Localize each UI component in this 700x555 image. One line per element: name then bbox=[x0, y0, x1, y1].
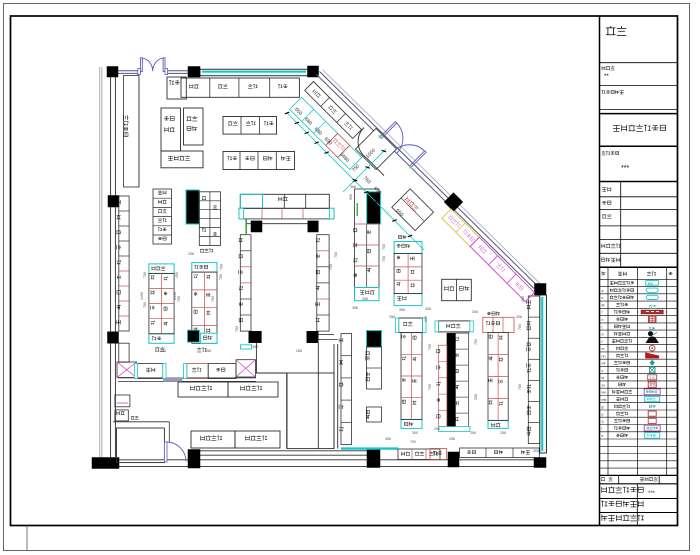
svg-text:1.5: 1.5 bbox=[649, 375, 655, 380]
svg-text:256: 256 bbox=[470, 431, 476, 435]
svg-text:700: 700 bbox=[410, 440, 416, 444]
svg-text:v: v bbox=[602, 369, 604, 373]
svg-text:**: ** bbox=[604, 74, 609, 80]
svg-text:700: 700 bbox=[428, 344, 432, 350]
svg-text:306: 306 bbox=[472, 310, 478, 314]
svg-text:***: *** bbox=[621, 165, 629, 172]
svg-text:306: 306 bbox=[516, 315, 522, 319]
svg-text:300: 300 bbox=[424, 316, 428, 322]
svg-text:wu: wu bbox=[602, 391, 607, 395]
svg-text:306: 306 bbox=[533, 449, 539, 453]
svg-text:680: 680 bbox=[313, 126, 323, 136]
svg-text:356: 356 bbox=[389, 315, 395, 319]
svg-text:e: e bbox=[602, 434, 604, 438]
svg-text:ts: ts bbox=[602, 376, 605, 380]
svg-text:700: 700 bbox=[329, 264, 333, 270]
svg-text:650: 650 bbox=[293, 107, 303, 117]
svg-text:n: n bbox=[602, 318, 604, 322]
svg-text:2450: 2450 bbox=[140, 292, 144, 300]
svg-text:700: 700 bbox=[143, 272, 147, 278]
svg-text:258: 258 bbox=[188, 252, 194, 256]
svg-text:356: 356 bbox=[352, 306, 358, 310]
svg-text:690: 690 bbox=[323, 136, 333, 146]
svg-text:a: a bbox=[602, 289, 604, 293]
svg-text:700: 700 bbox=[382, 244, 386, 250]
svg-text:700: 700 bbox=[177, 296, 181, 302]
svg-text:d: d bbox=[602, 333, 604, 337]
svg-text:m: m bbox=[602, 347, 605, 351]
svg-text:p: p bbox=[602, 412, 604, 416]
svg-text:s: s bbox=[602, 296, 604, 300]
svg-text:***: *** bbox=[648, 491, 656, 497]
svg-text:358: 358 bbox=[252, 345, 258, 349]
svg-text:306: 306 bbox=[425, 307, 431, 311]
svg-text:700: 700 bbox=[219, 274, 223, 280]
svg-text:256: 256 bbox=[449, 437, 455, 441]
svg-text:l: l bbox=[602, 427, 603, 431]
svg-text:700: 700 bbox=[474, 339, 478, 345]
svg-text:3480: 3480 bbox=[338, 152, 350, 164]
svg-text:456: 456 bbox=[160, 349, 166, 353]
svg-text:700: 700 bbox=[334, 252, 338, 258]
svg-text:306: 306 bbox=[362, 297, 368, 301]
svg-text:358: 358 bbox=[385, 437, 391, 441]
svg-text:356: 356 bbox=[399, 308, 405, 312]
svg-text:700: 700 bbox=[518, 324, 522, 330]
svg-text:450: 450 bbox=[521, 296, 525, 302]
svg-text:700: 700 bbox=[428, 384, 432, 390]
svg-text:mtr: mtr bbox=[602, 398, 608, 402]
svg-text:700: 700 bbox=[382, 256, 386, 262]
svg-text:760: 760 bbox=[362, 175, 372, 185]
svg-text:t: t bbox=[602, 325, 603, 329]
svg-text:700: 700 bbox=[235, 326, 239, 332]
svg-text:456: 456 bbox=[205, 349, 211, 353]
svg-text:950: 950 bbox=[349, 194, 353, 200]
svg-text:300: 300 bbox=[412, 431, 418, 435]
svg-text:366: 366 bbox=[350, 185, 356, 189]
svg-text:750: 750 bbox=[351, 163, 361, 173]
svg-text:700: 700 bbox=[143, 302, 147, 308]
svg-text:256: 256 bbox=[500, 431, 506, 435]
svg-text:680: 680 bbox=[303, 117, 313, 127]
svg-text:450: 450 bbox=[175, 272, 179, 278]
svg-text:f: f bbox=[602, 311, 603, 315]
svg-text:256: 256 bbox=[434, 427, 440, 431]
svg-text:mf: mf bbox=[602, 362, 606, 366]
svg-text:q: q bbox=[602, 420, 604, 424]
svg-text:700: 700 bbox=[518, 384, 522, 390]
svg-text:700: 700 bbox=[211, 296, 215, 302]
svg-text:258: 258 bbox=[474, 394, 478, 400]
svg-text:nn: nn bbox=[602, 354, 606, 358]
svg-text:700: 700 bbox=[220, 264, 224, 270]
svg-text:f: f bbox=[602, 340, 603, 344]
svg-text:xx: xx bbox=[602, 383, 606, 387]
svg-text:268: 268 bbox=[296, 349, 302, 353]
svg-text:M: M bbox=[602, 304, 605, 308]
svg-text:g: g bbox=[602, 405, 604, 409]
